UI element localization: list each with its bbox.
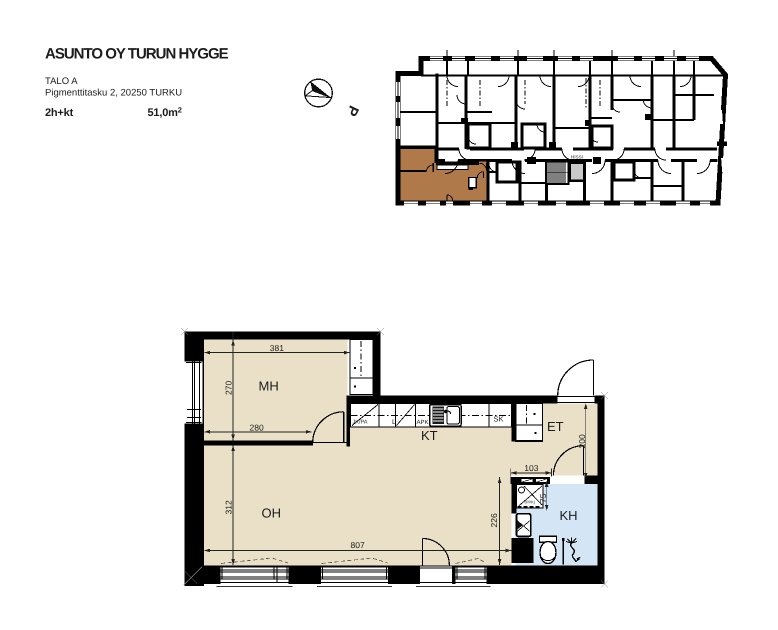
svg-text:200: 200 xyxy=(577,434,587,448)
svg-text:Pigmenttitasku 2, 20250 TURKU: Pigmenttitasku 2, 20250 TURKU xyxy=(45,88,182,99)
svg-text:2h+kt: 2h+kt xyxy=(45,107,74,119)
svg-text:HISSI: HISSI xyxy=(571,155,583,160)
svg-text:MH: MH xyxy=(259,379,279,394)
svg-text:807: 807 xyxy=(351,540,365,550)
svg-text:381: 381 xyxy=(270,343,284,353)
svg-text:OH: OH xyxy=(262,506,282,521)
svg-text:SK: SK xyxy=(494,415,504,424)
svg-text:226: 226 xyxy=(489,513,499,527)
svg-text:JK/PA: JK/PA xyxy=(353,420,368,426)
svg-text:270: 270 xyxy=(223,381,233,395)
svg-text:103: 103 xyxy=(524,463,538,473)
svg-text:KT: KT xyxy=(421,428,438,443)
svg-text:KH: KH xyxy=(560,508,578,523)
svg-text:L: L xyxy=(392,419,396,426)
svg-text:75: 75 xyxy=(538,493,548,503)
svg-text:APK: APK xyxy=(417,419,429,426)
svg-text:(PPK): (PPK) xyxy=(525,500,536,505)
svg-text:TALO A: TALO A xyxy=(45,76,78,87)
svg-text:280: 280 xyxy=(250,423,264,433)
svg-text:ET: ET xyxy=(547,419,564,434)
svg-text:312: 312 xyxy=(223,500,233,514)
svg-text:51,0m2: 51,0m2 xyxy=(148,106,182,120)
svg-text:ASUNTO OY TURUN HYGGE: ASUNTO OY TURUN HYGGE xyxy=(45,46,229,63)
